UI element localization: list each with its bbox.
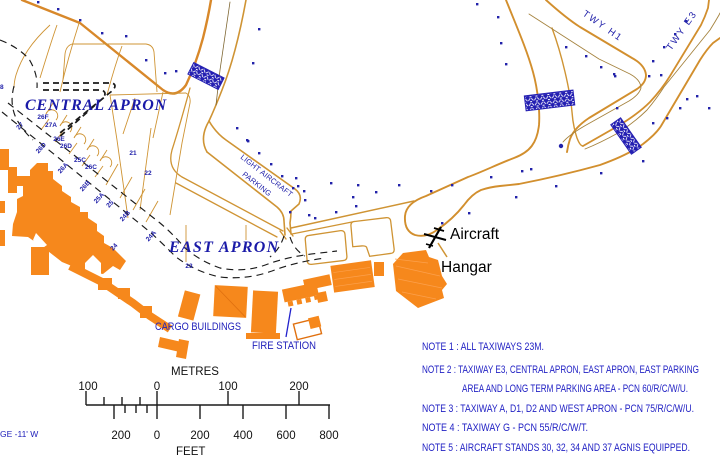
- svg-text:FIRE STATION: FIRE STATION: [252, 340, 316, 352]
- svg-text:METRES: METRES: [171, 366, 219, 378]
- svg-text:NOTE 5 : AIRCRAFT STANDS 30, 3: NOTE 5 : AIRCRAFT STANDS 30, 32, 34 AND …: [422, 442, 690, 454]
- svg-text:200: 200: [190, 430, 209, 442]
- svg-text:NOTE 1 : ALL TAXIWAYS 23M.: NOTE 1 : ALL TAXIWAYS 23M.: [422, 341, 544, 353]
- svg-text:26E: 26E: [53, 136, 65, 143]
- svg-text:NOTE 2 : TAXIWAY E3, CENTRAL A: NOTE 2 : TAXIWAY E3, CENTRAL APRON, EAST…: [422, 364, 699, 376]
- svg-text:AREA AND LONG TERM PARKING ARE: AREA AND LONG TERM PARKING AREA - PCN 60…: [462, 383, 688, 395]
- svg-text:28: 28: [0, 84, 4, 91]
- svg-text:100: 100: [78, 381, 97, 393]
- svg-text:Aircraft: Aircraft: [450, 226, 500, 243]
- svg-text:200: 200: [289, 381, 308, 393]
- svg-text:0: 0: [154, 430, 160, 442]
- svg-text:NOTE 4 : TAXIWAY G - PCN 55/R/: NOTE 4 : TAXIWAY G - PCN 55/R/C/W/T.: [422, 422, 588, 434]
- svg-text:Hangar: Hangar: [441, 259, 492, 276]
- svg-text:600: 600: [276, 430, 295, 442]
- svg-text:26C: 26C: [85, 164, 97, 171]
- svg-text:23: 23: [185, 263, 193, 270]
- svg-text:100: 100: [218, 381, 237, 393]
- svg-text:FEET: FEET: [176, 446, 205, 458]
- svg-text:27A: 27A: [45, 122, 57, 129]
- svg-text:NOTE 3 : TAXIWAY A, D1, D2 AND: NOTE 3 : TAXIWAY A, D1, D2 AND WEST APRO…: [422, 403, 694, 415]
- svg-text:21: 21: [129, 150, 137, 157]
- svg-text:26F: 26F: [37, 114, 48, 121]
- svg-text:CARGO BUILDINGS: CARGO BUILDINGS: [155, 321, 241, 333]
- svg-text:400: 400: [233, 430, 252, 442]
- svg-text:22: 22: [144, 170, 152, 177]
- svg-text:800: 800: [319, 430, 338, 442]
- svg-text:200: 200: [111, 430, 130, 442]
- svg-text:0: 0: [154, 381, 160, 393]
- svg-text:25C: 25C: [74, 157, 86, 164]
- svg-text:CENTRAL APRON: CENTRAL APRON: [25, 97, 168, 114]
- svg-text:26D: 26D: [60, 143, 72, 150]
- svg-text:EAST APRON: EAST APRON: [168, 239, 280, 256]
- svg-text:GE -11' W: GE -11' W: [0, 429, 38, 439]
